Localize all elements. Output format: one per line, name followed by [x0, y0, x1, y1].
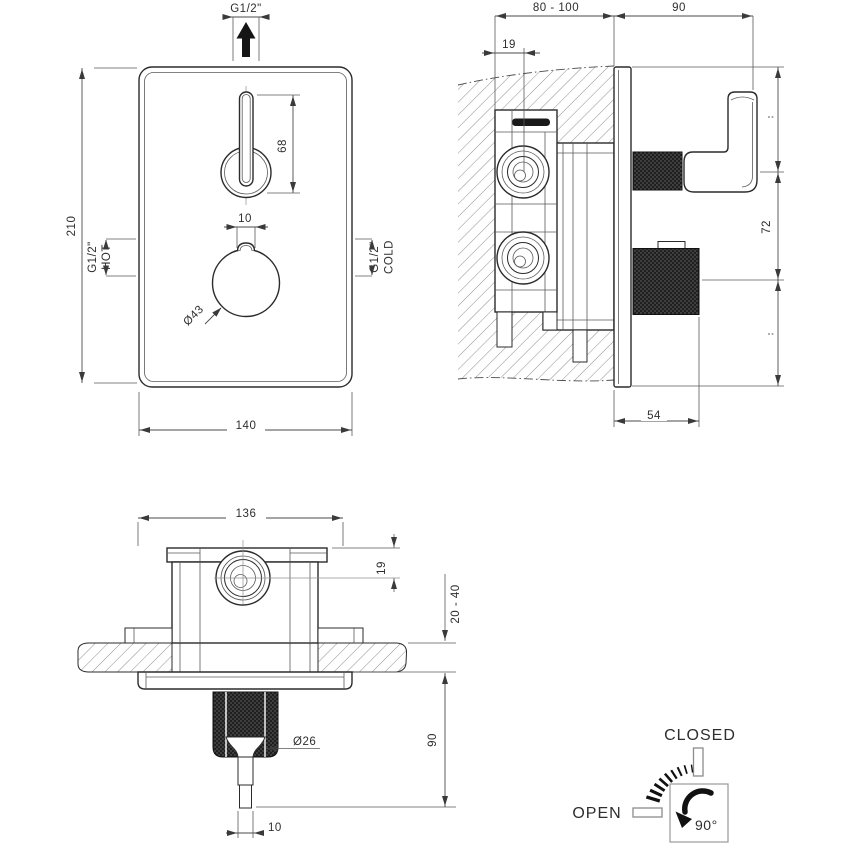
dim-handle-projection: 90: [672, 2, 686, 14]
knob-knurl-side: [633, 249, 699, 315]
plate-side: [614, 67, 631, 387]
side-view: 80 - 100 90 19 72 54: [458, 2, 784, 427]
handle-closed-position: [694, 748, 704, 776]
dim-body-width: 136: [236, 508, 257, 520]
wall-band-hatch-right: [318, 643, 407, 672]
closed-label: CLOSED: [664, 727, 736, 744]
open-label: OPEN: [572, 805, 621, 822]
port-bottom-side: [497, 232, 549, 284]
technical-drawing-page: G1/2" 68 210 10: [0, 0, 850, 850]
flow-arrow-icon: [237, 22, 256, 57]
lever-stem-knurl-side: [633, 152, 682, 190]
dim-knob-diameter-plan: Ø26: [293, 736, 316, 748]
port-top-side: [497, 146, 549, 198]
lever-stem-plan: [238, 757, 253, 785]
knob-front-circle: [213, 250, 280, 317]
rotation-legend: CLOSED OPEN 90°: [572, 727, 736, 842]
dim-port-offset-plan: 19: [376, 561, 388, 575]
dim-inlet-top: G1/2": [230, 3, 262, 15]
front-view: G1/2" 68 210 10: [66, 3, 396, 436]
drawing-canvas: G1/2" 68 210 10: [0, 0, 850, 850]
body-ear-right: [318, 628, 363, 643]
plate-plan: [138, 672, 352, 689]
dim-lever-width: 10: [268, 822, 282, 834]
dim-port-offset-side: 19: [502, 39, 516, 51]
hot-text: HOT: [101, 244, 113, 270]
handle-open-position: [633, 808, 662, 817]
dim-overall-width: 140: [236, 420, 257, 432]
dim-lever-projection: 90: [427, 733, 439, 747]
hot-size-text: G1/2": [87, 241, 99, 273]
lever-handle-front: [240, 92, 254, 186]
dim-tab-width: 10: [238, 213, 252, 225]
dim-lever-length: 68: [277, 139, 289, 153]
cold-size-text: G1/2": [369, 241, 381, 273]
lever-hook-handle-side: [684, 92, 757, 192]
dim-knob-projection: 54: [647, 410, 661, 422]
wall-band-hatch-left: [78, 643, 172, 672]
knob-tab-side: [658, 242, 685, 249]
hot-inlet-label: G1/2" HOT: [87, 239, 136, 276]
dim-axis-distance: 72: [761, 220, 773, 234]
body-ear-left: [125, 628, 172, 643]
cold-inlet-label: G1/2" COLD: [355, 239, 396, 276]
dim-recess-depth: 80 - 100: [533, 2, 579, 14]
cold-text: COLD: [384, 240, 396, 274]
angle-label: 90°: [695, 817, 718, 833]
dim-overall-height: 210: [66, 216, 78, 237]
bottom-view: Ø26 136 19 20 - 40 90 10: [78, 507, 462, 838]
dim-wall-thickness: 20 - 40: [450, 584, 462, 623]
mounting-tab-side: [512, 119, 550, 127]
